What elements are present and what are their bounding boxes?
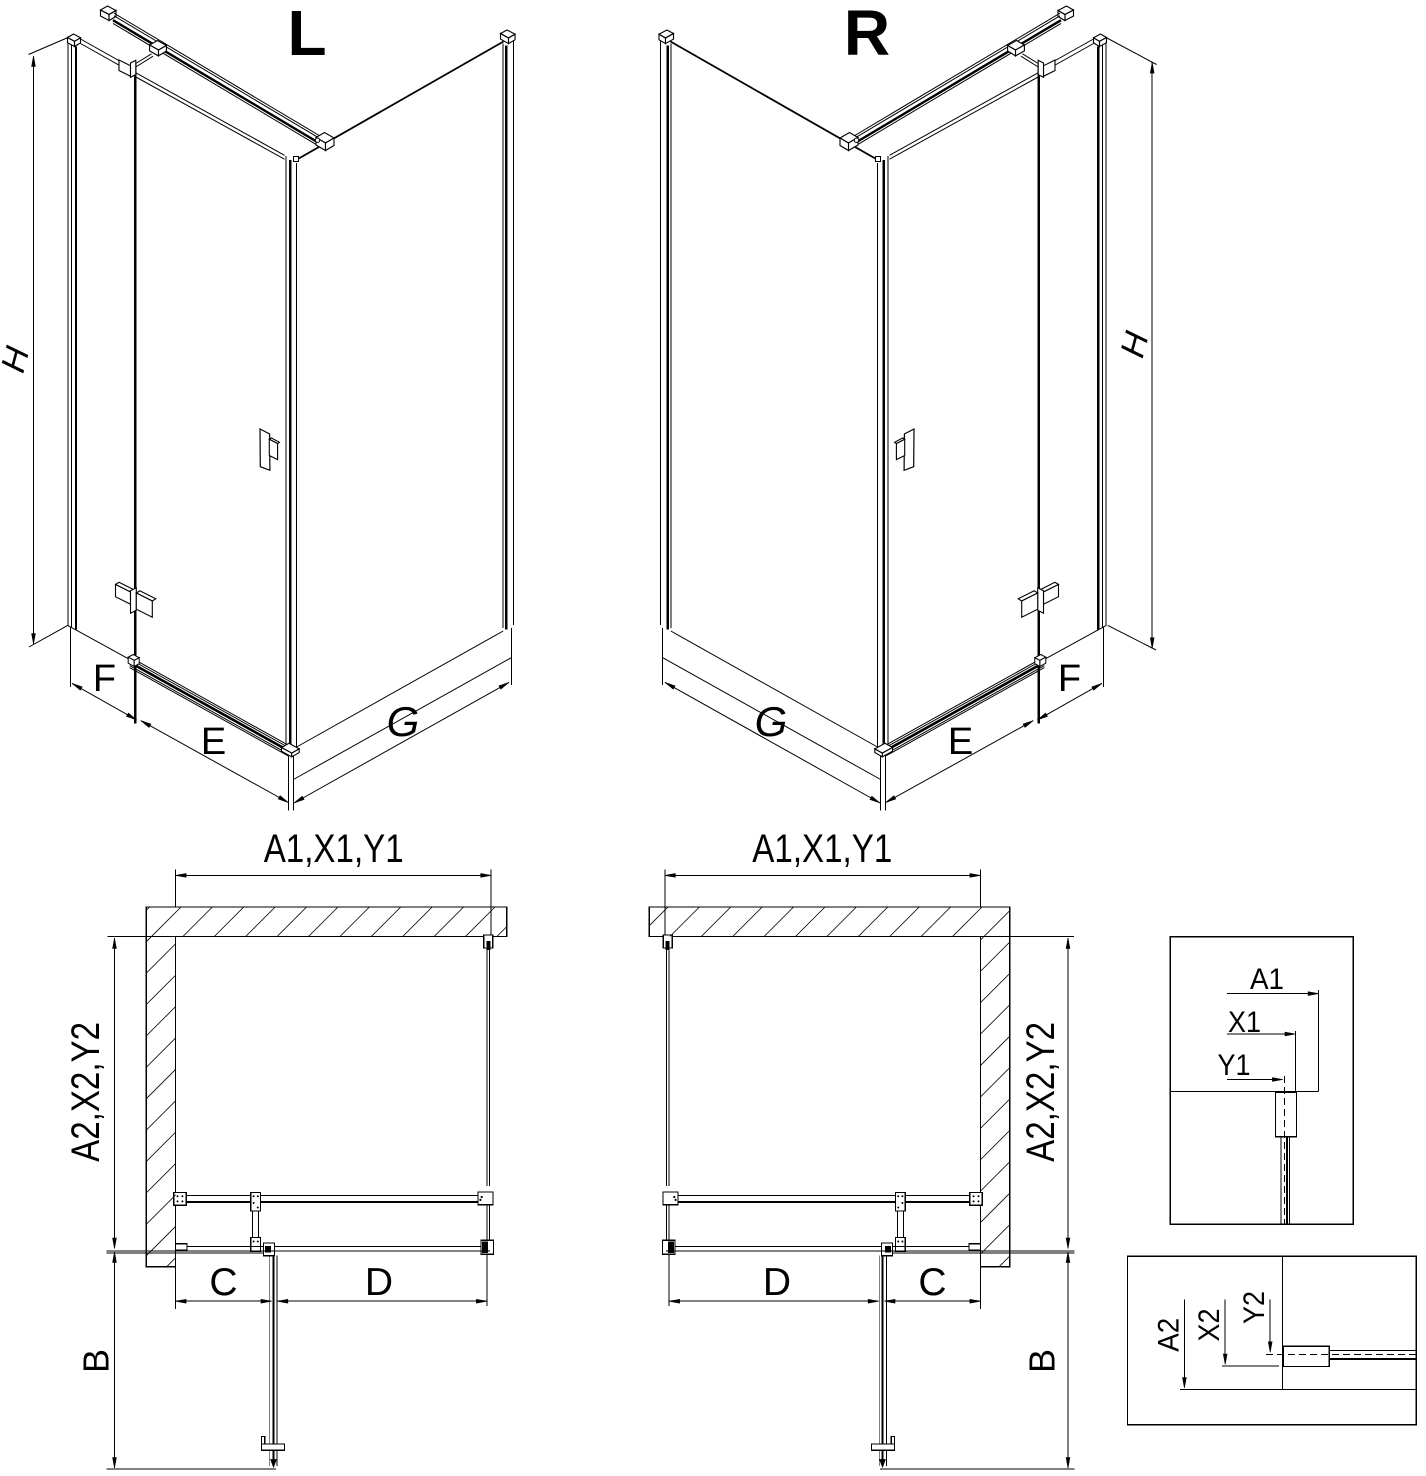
svg-text:Y1: Y1: [1218, 1049, 1251, 1082]
svg-text:A2,X2,Y2: A2,X2,Y2: [64, 1022, 108, 1162]
svg-text:D: D: [365, 1261, 393, 1304]
svg-text:F: F: [93, 658, 116, 700]
svg-text:F: F: [1058, 658, 1081, 700]
svg-text:B: B: [1022, 1349, 1063, 1373]
svg-text:A2: A2: [1152, 1318, 1185, 1352]
svg-text:G: G: [755, 698, 788, 745]
svg-text:D: D: [763, 1261, 791, 1304]
svg-text:X2: X2: [1193, 1309, 1226, 1342]
svg-text:A1,X1,Y1: A1,X1,Y1: [752, 827, 892, 871]
svg-text:G: G: [387, 698, 420, 745]
svg-text:C: C: [918, 1261, 946, 1304]
svg-text:Y2: Y2: [1238, 1291, 1271, 1324]
svg-text:B: B: [76, 1349, 117, 1373]
svg-text:A1,X1,Y1: A1,X1,Y1: [264, 827, 404, 871]
svg-text:E: E: [948, 721, 973, 763]
svg-text:R: R: [844, 0, 890, 69]
svg-text:E: E: [201, 721, 226, 763]
svg-text:L: L: [287, 0, 326, 69]
svg-text:A2,X2,Y2: A2,X2,Y2: [1019, 1022, 1063, 1162]
svg-text:A1: A1: [1250, 963, 1284, 996]
svg-text:C: C: [209, 1261, 237, 1304]
